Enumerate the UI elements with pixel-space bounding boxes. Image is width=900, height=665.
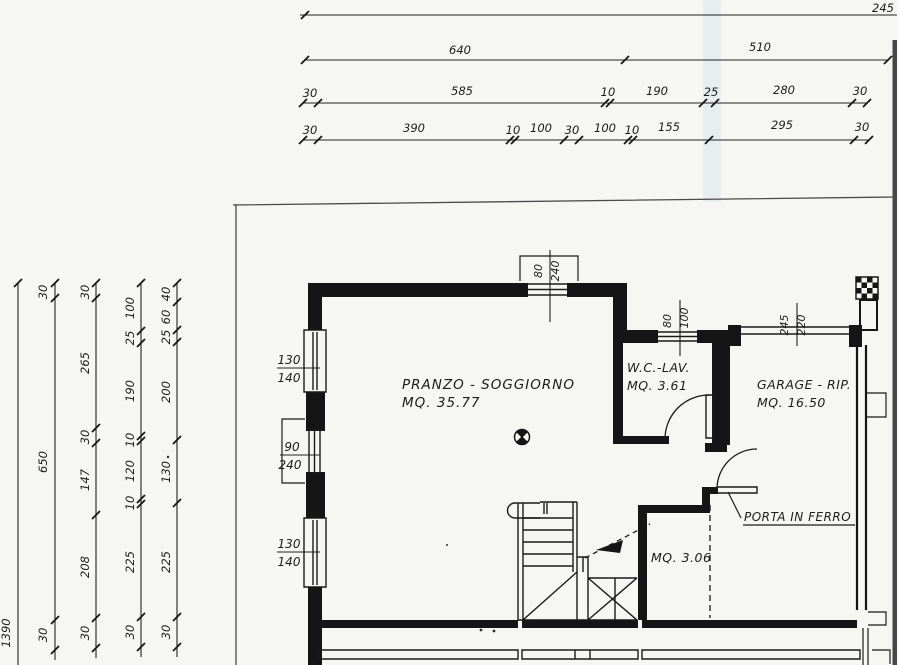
dim-label: 30 xyxy=(78,430,92,445)
opening-width-label: 130 xyxy=(278,353,301,367)
dim-label: 25 xyxy=(159,330,173,345)
opening-width-label: 245 xyxy=(778,315,791,336)
dim-label: 30 xyxy=(853,84,868,98)
dim-label: 40 xyxy=(159,287,173,302)
door-swing-arcs xyxy=(665,395,757,489)
dim-label: 30 xyxy=(159,625,173,640)
opening-width-label: 90 xyxy=(284,440,300,454)
dim-label: 30 xyxy=(565,123,580,137)
dim-label: 120 xyxy=(123,460,137,482)
dim-label: 10 xyxy=(601,85,616,99)
opening-height-label: 140 xyxy=(278,371,301,385)
dimension-ticks xyxy=(14,11,892,654)
room-label-garage: GARAGE - RIP. xyxy=(757,377,851,392)
opening-height-label: 240 xyxy=(549,261,562,282)
lower-storey-wall xyxy=(318,650,860,659)
dim-label: 265 xyxy=(78,352,92,374)
dim-label: 30 xyxy=(36,628,50,643)
opening-height-label: 100 xyxy=(678,308,691,329)
dim-label: 390 xyxy=(403,121,425,135)
speck xyxy=(446,544,448,546)
scan-specks xyxy=(167,456,496,633)
dim-label: 10 xyxy=(123,433,137,448)
room-label-pranzo: PRANZO - SOGGIORNO xyxy=(402,377,575,393)
dim-label: 30 xyxy=(78,626,92,641)
dim-label: 30 xyxy=(855,120,870,134)
dim-label: 585 xyxy=(451,84,473,98)
stair-newel-post xyxy=(508,503,547,518)
chimney-checker-hatch xyxy=(856,277,878,299)
opening-height-label: 140 xyxy=(278,555,301,569)
dim-label: 25 xyxy=(704,85,719,99)
opening-height-label: 240 xyxy=(279,458,302,472)
dim-label: 190 xyxy=(646,84,668,98)
dim-label: 130 xyxy=(159,461,173,483)
column-fill-wedges xyxy=(517,430,527,444)
speck xyxy=(167,456,169,458)
dim-label: 1390 xyxy=(0,618,13,647)
stair-direction-arrow xyxy=(596,540,623,553)
dim-label: 30 xyxy=(78,285,92,300)
iron-door-note: PORTA IN FERRO xyxy=(744,510,851,524)
dim-label: 25 xyxy=(123,331,137,346)
opening-width-label: 130 xyxy=(278,537,301,551)
dim-label: 30 xyxy=(123,625,137,640)
opening-width-label: 80 xyxy=(661,314,674,328)
dim-label: 640 xyxy=(449,43,471,57)
dim-label: 295 xyxy=(771,118,793,132)
dim-label: 510 xyxy=(749,40,771,54)
speck xyxy=(493,630,496,633)
room-area-pranzo: MQ. 35.77 xyxy=(402,395,481,411)
dim-label: 60 xyxy=(159,310,173,325)
dim-label: 245 xyxy=(872,1,894,15)
dim-label: 190 xyxy=(123,380,137,402)
column-symbol xyxy=(515,430,530,445)
speck xyxy=(480,629,483,632)
staircase xyxy=(518,502,637,620)
room-area-wc: MQ. 3.61 xyxy=(627,378,687,393)
room-label-wc: W.C.-LAV. xyxy=(627,360,690,375)
dim-label: 650 xyxy=(36,451,50,473)
dim-label: 225 xyxy=(159,551,173,573)
room-area-garage: MQ. 16.50 xyxy=(757,395,826,410)
dim-label: 30 xyxy=(303,123,318,137)
dim-label: 208 xyxy=(78,556,92,578)
dim-label: 280 xyxy=(773,83,795,97)
dim-label: 100 xyxy=(594,121,616,135)
scan-edge-line xyxy=(893,40,898,665)
opening-height-label: 220 xyxy=(795,315,808,336)
sheet-border xyxy=(233,197,897,665)
dim-label: 100 xyxy=(530,121,552,135)
floor-plan-canvas: 245 640 510 30 585 10 190 25 280 30 30 3… xyxy=(0,0,900,665)
garage-right-wall xyxy=(857,345,866,610)
dimension-lines xyxy=(18,15,897,665)
dim-label: 10 xyxy=(506,123,521,137)
opening-width-label: 80 xyxy=(532,264,545,278)
flue-shaft xyxy=(860,300,877,330)
walls xyxy=(306,283,862,665)
dim-label: 147 xyxy=(78,468,92,491)
scanned-floor-plan-sheet: 245 640 510 30 585 10 190 25 280 30 30 3… xyxy=(0,0,900,665)
dim-label: 200 xyxy=(159,381,173,403)
dim-label: 10 xyxy=(123,496,137,511)
dim-label: 30 xyxy=(303,86,318,100)
dim-label: 100 xyxy=(123,297,137,319)
dim-label: 155 xyxy=(658,120,680,134)
room-area-hall: MQ. 3.06 xyxy=(651,550,711,565)
dim-label: 30 xyxy=(36,285,50,300)
dim-label: 225 xyxy=(123,551,137,573)
dim-label: 10 xyxy=(625,123,640,137)
